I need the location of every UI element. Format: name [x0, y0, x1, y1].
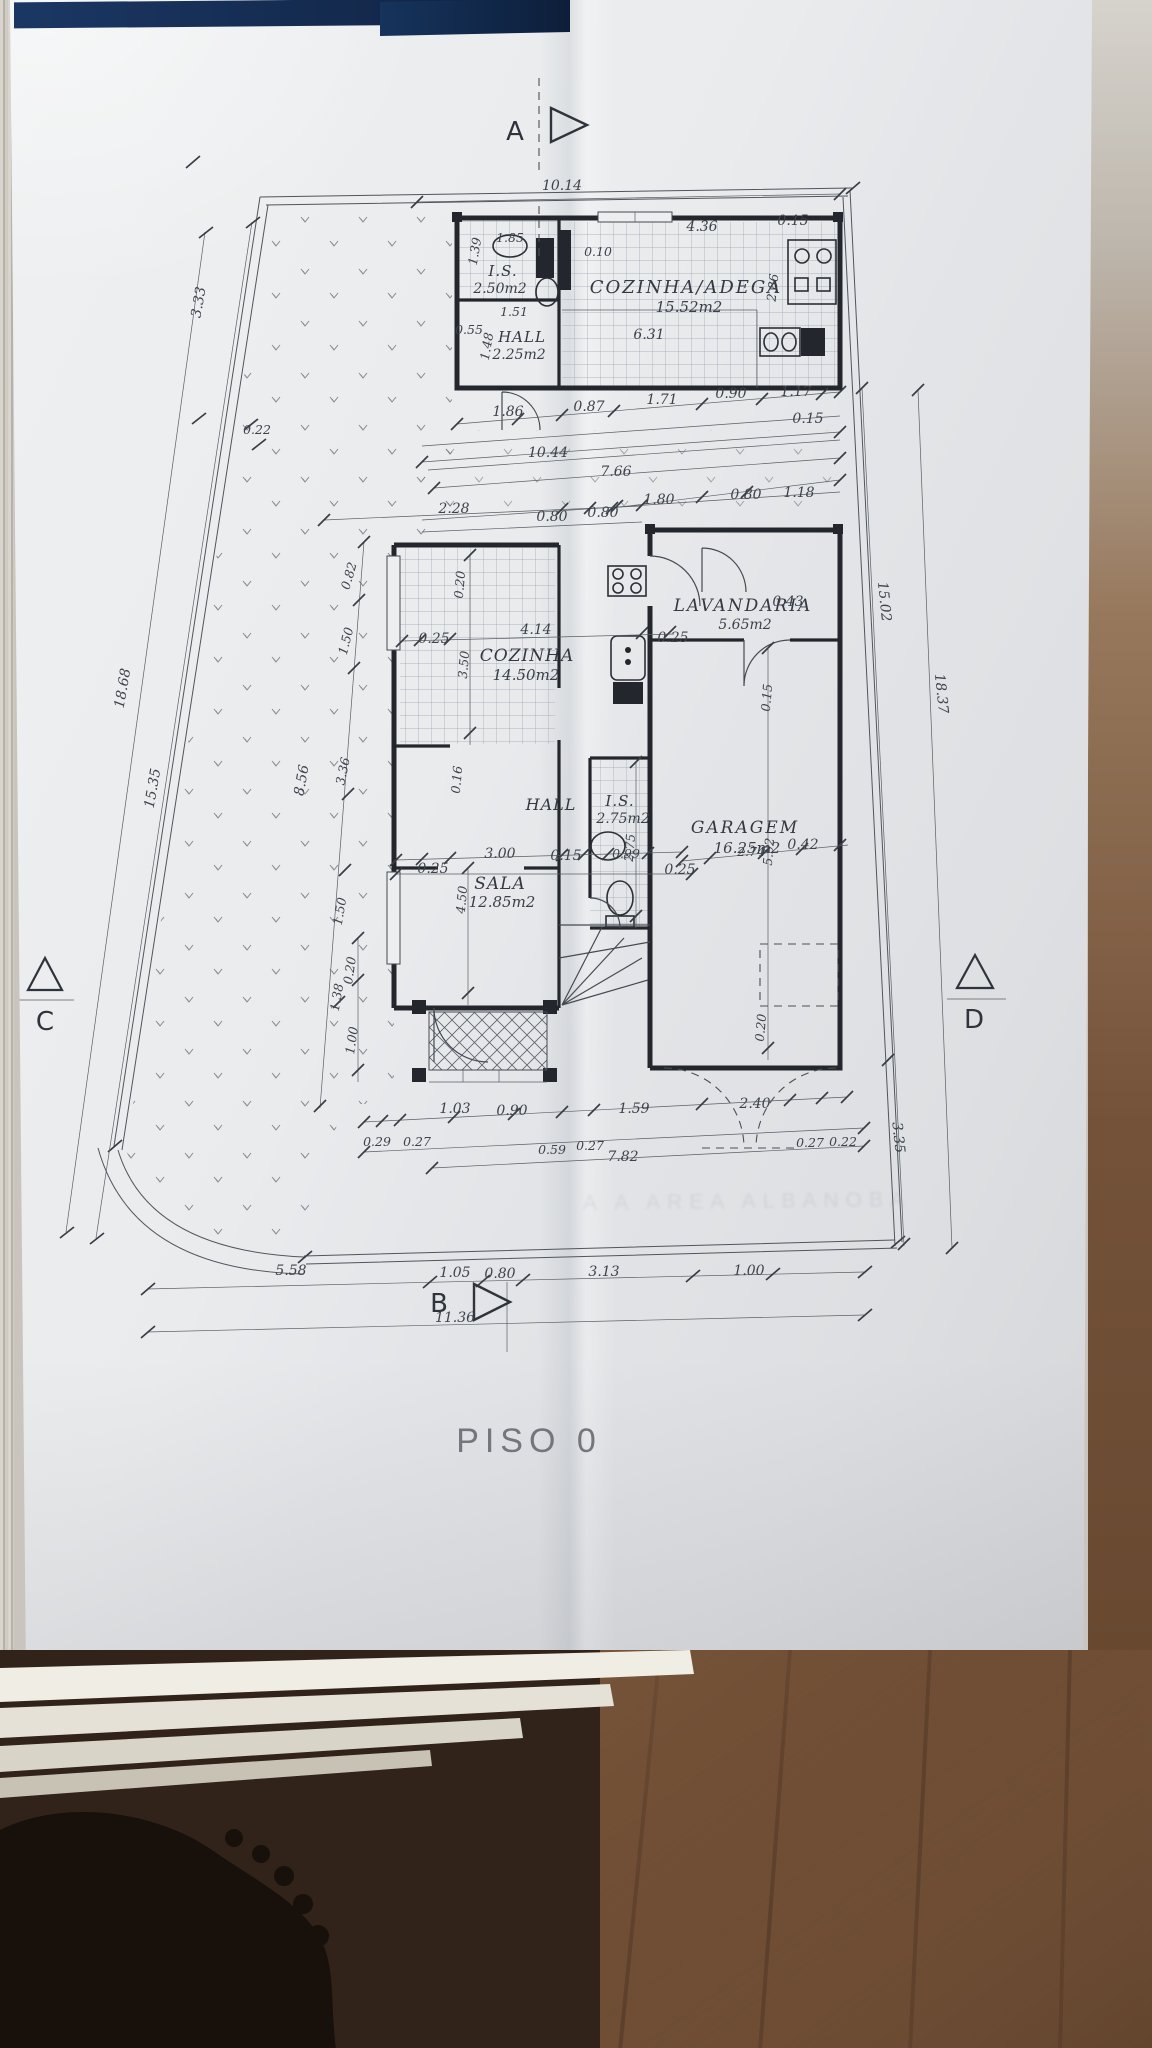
dim-label: 2.28	[437, 501, 469, 517]
shower-column-icon	[536, 238, 554, 278]
dim-label: 0.27	[576, 1138, 604, 1153]
dim-label: 15.35	[142, 767, 165, 809]
room-label: I.S.	[604, 792, 634, 810]
dim-label: 1.85	[496, 230, 524, 245]
section-marker-c: C	[16, 958, 74, 1037]
section-arrow-icon	[551, 108, 587, 142]
dim-label: 10.14	[542, 178, 582, 194]
room-label: HALL	[497, 328, 546, 346]
dim-label: 3.50	[455, 650, 472, 679]
dim-label: 0.87	[573, 399, 604, 415]
dim-label: 0.25	[664, 862, 695, 878]
photo-bottom-band	[0, 1650, 1152, 2048]
room-label: HALL	[525, 795, 577, 814]
dim-label: 6.31	[633, 327, 664, 343]
garage-door-swing	[664, 944, 838, 1148]
room-label: COZINHA/ADEGA	[590, 277, 783, 298]
dim-label: 4.50	[453, 885, 470, 915]
dim-label: 0.59	[538, 1142, 566, 1157]
dim-label: 0.15	[758, 683, 775, 712]
dim-label: 2.40	[738, 1096, 770, 1112]
section-marker-d: D	[947, 955, 1006, 1035]
faded-stamp-text: A A AREA ALBANOBA	[583, 1188, 911, 1214]
dim-label: 18.37	[931, 673, 951, 715]
dim-label: 1.05	[439, 1265, 470, 1281]
photo-of-floor-plan: A B C D I.S. 2.50m2 HALL	[0, 0, 1152, 2048]
stove-icon-kitchen	[608, 566, 646, 596]
dim-label: 1.80	[643, 492, 674, 508]
dim-label: 0.10	[584, 244, 612, 259]
dim-label: 0.29	[363, 1134, 391, 1149]
fridge-icon	[611, 636, 645, 704]
room-area: 14.50m2	[493, 666, 560, 684]
dim-label: 0.16	[448, 765, 465, 794]
dim-label: 0.25	[657, 630, 688, 646]
dim-label: 15.02	[874, 581, 894, 623]
dim-label: 0.99	[612, 846, 640, 861]
dim-label: 1.86	[492, 404, 523, 420]
room-label: SALA	[474, 874, 526, 894]
dim-label: 0.20	[752, 1013, 769, 1042]
room-label: COZINHA	[480, 646, 574, 666]
dim-label: 0.80	[536, 509, 567, 525]
dim-label: 0.15	[550, 848, 581, 864]
room-area: 15.52m2	[656, 298, 723, 316]
dim-label: 1.71	[646, 392, 677, 408]
dim-label: 0.22	[243, 422, 271, 437]
page-stack-left-edge	[0, 0, 14, 1700]
floor-plan-drawing: A B C D I.S. 2.50m2 HALL	[10, 0, 1092, 1698]
dim-label: 0.80	[484, 1266, 515, 1282]
dim-label: 11.36	[435, 1310, 475, 1326]
dim-label: 7.82	[607, 1149, 638, 1165]
dim-label: 0.15	[777, 213, 808, 229]
dim-label: 0.42	[787, 837, 818, 853]
plan-paper-sheet: A B C D I.S. 2.50m2 HALL	[10, 0, 1092, 1698]
room-label: GARAGEM	[691, 818, 799, 838]
dim-label: 0.90	[496, 1103, 527, 1119]
dim-label: 2.86	[764, 273, 782, 303]
dim-label: 0.20	[451, 570, 468, 599]
dim-label: 4.14	[519, 622, 551, 638]
room-area: 5.65m2	[718, 617, 771, 633]
room-label: I.S.	[487, 262, 517, 280]
dim-label: 7.66	[600, 464, 631, 480]
dim-label: 0.55	[455, 322, 483, 337]
window-left-2	[387, 872, 400, 964]
dim-label: 1.03	[439, 1101, 470, 1117]
dim-label: 0.25	[417, 861, 448, 877]
dim-label: 0.90	[715, 386, 746, 402]
dim-label: 3.35	[888, 1121, 907, 1154]
dim-label: 0.22	[829, 1134, 857, 1149]
section-arrow-icon	[474, 1284, 510, 1320]
dim-label: 3.00	[484, 846, 515, 862]
dim-label: 1.51	[500, 304, 528, 319]
dim-label: 3.33	[188, 285, 209, 319]
dim-label: 4.36	[685, 219, 717, 235]
dim-label: 10.44	[528, 445, 568, 461]
porch-paving	[429, 1012, 547, 1070]
stairs	[559, 925, 650, 1005]
dim-label: 5.58	[275, 1263, 306, 1279]
room-area: 2.25m2	[491, 347, 545, 363]
marker-letter: A	[506, 117, 524, 147]
dim-label: 0.80	[587, 505, 618, 521]
is-mid-floor-tiles	[590, 760, 648, 926]
dim-label: 1.00	[733, 1263, 764, 1279]
marker-letter: C	[36, 1007, 54, 1037]
dim-label: 0.25	[418, 631, 449, 647]
dim-label: 0.27	[403, 1134, 431, 1149]
dim-label: 0.15	[792, 411, 823, 427]
dim-label: 1.59	[618, 1101, 649, 1117]
dim-label: 0.27	[796, 1135, 824, 1150]
section-triangle-icon	[28, 958, 62, 990]
window-left-1	[387, 556, 400, 650]
door-leaf	[560, 230, 571, 290]
dim-label: 5.92	[760, 837, 777, 866]
blue-book-edge-2	[380, 0, 570, 36]
marker-letter: D	[964, 1005, 984, 1035]
dim-label: 0.43	[772, 594, 803, 610]
section-triangle-icon	[957, 955, 993, 988]
dim-label: 18.68	[112, 667, 135, 709]
dim-label: 1.17	[780, 384, 811, 400]
room-area: 2.75m2	[595, 811, 649, 827]
room-area: 12.85m2	[469, 893, 536, 911]
room-area: 2.50m2	[472, 281, 526, 297]
dim-label: 3.13	[588, 1264, 619, 1280]
dim-label: 0.80	[730, 487, 761, 503]
floor-title: PISO 0	[456, 1422, 602, 1460]
dim-label: 1.18	[783, 485, 814, 501]
